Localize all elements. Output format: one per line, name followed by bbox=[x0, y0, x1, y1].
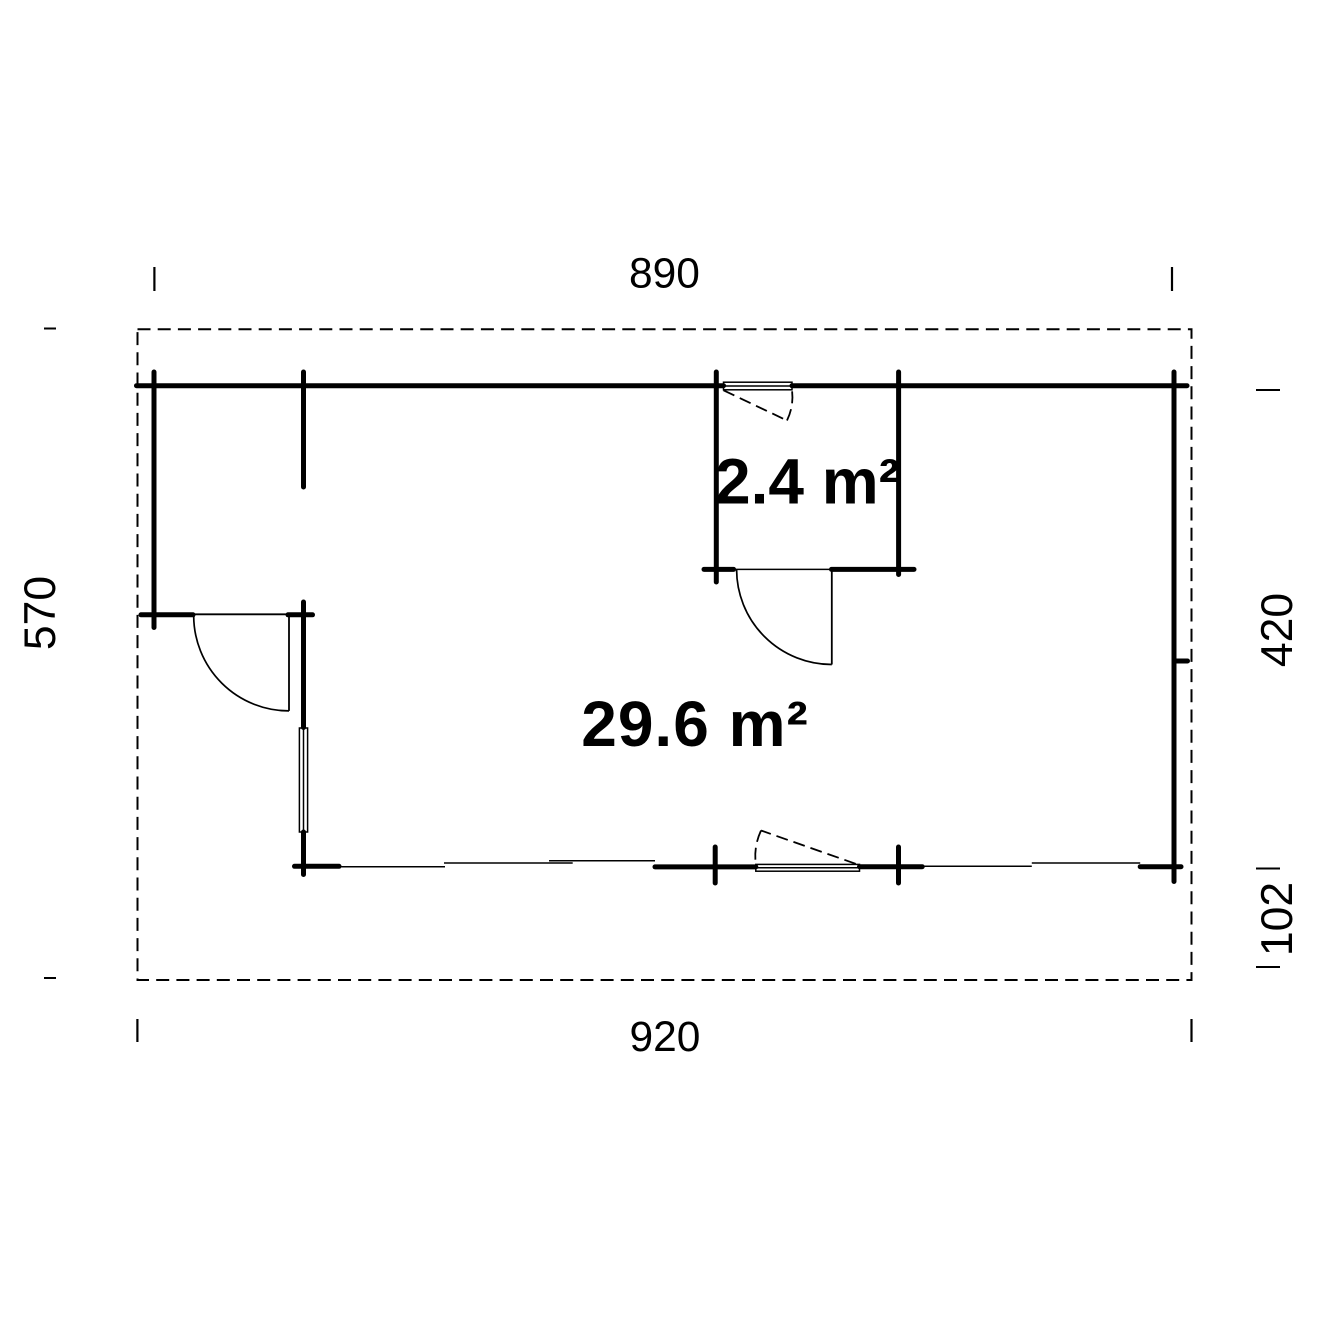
svg-text:920: 920 bbox=[630, 1014, 701, 1061]
svg-text:890: 890 bbox=[629, 251, 700, 298]
svg-text:420: 420 bbox=[1253, 593, 1302, 667]
svg-text:29.6 m²: 29.6 m² bbox=[581, 688, 809, 760]
svg-text:570: 570 bbox=[16, 576, 65, 650]
svg-text:102: 102 bbox=[1253, 882, 1302, 956]
svg-text:2.4 m²: 2.4 m² bbox=[715, 446, 900, 518]
